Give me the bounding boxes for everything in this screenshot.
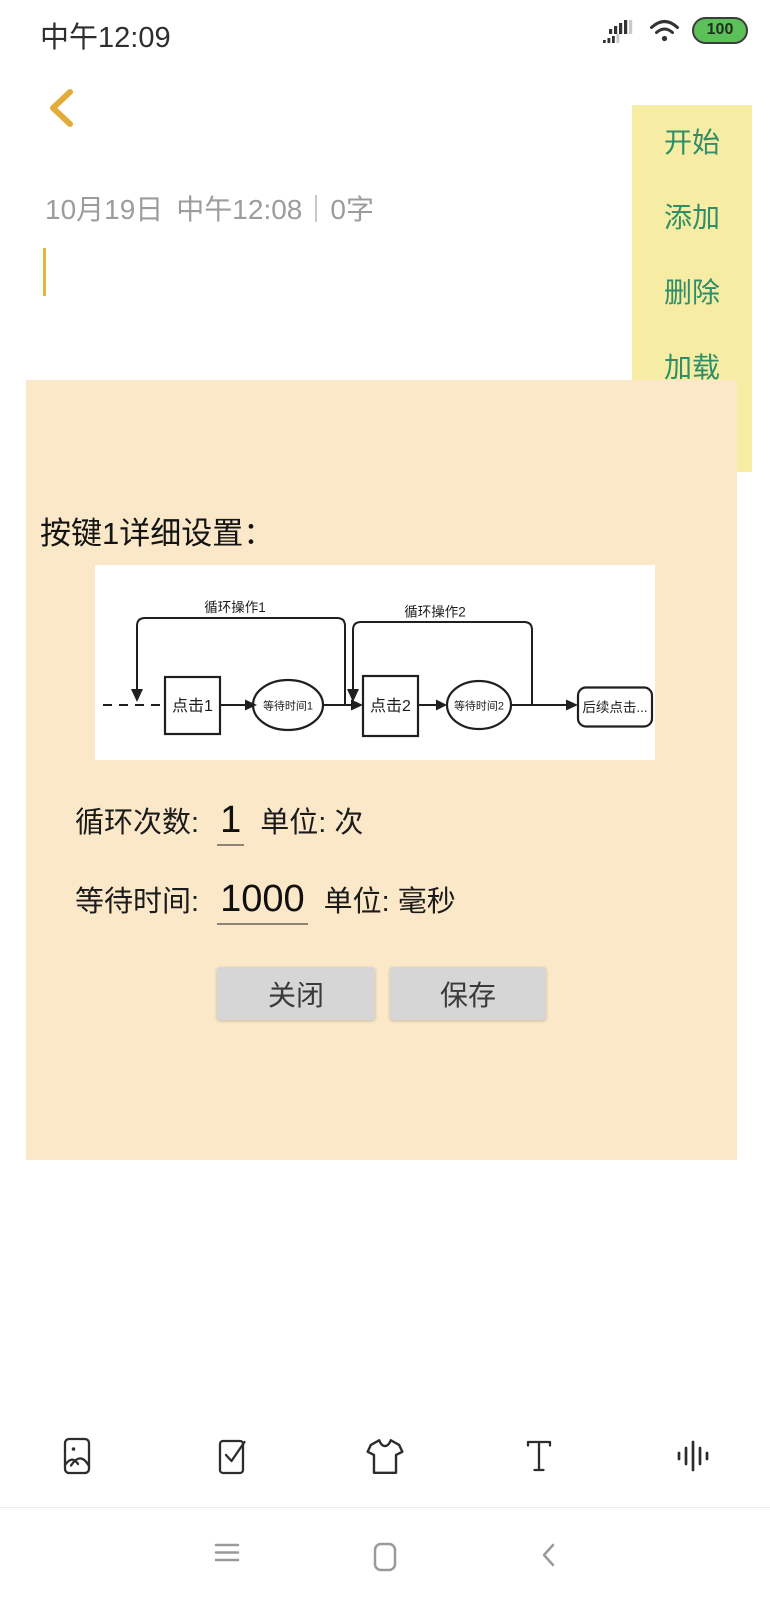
- insert-checklist-button[interactable]: [154, 1432, 308, 1480]
- loop1-down-arrowhead: [131, 689, 143, 702]
- tshirt-icon: [364, 1435, 406, 1477]
- status-bar: 中午12:09 100: [0, 0, 770, 62]
- text-format-icon: [519, 1435, 559, 1477]
- navbar-separator: [0, 1507, 770, 1508]
- wait-time-label: 等待时间:: [75, 878, 199, 920]
- checklist-icon: [211, 1435, 251, 1477]
- menu-icon: [212, 1541, 242, 1565]
- node-next-label: 后续点击...: [582, 700, 647, 715]
- home-icon: [372, 1541, 398, 1573]
- note-meta: 10月19日 中午12:08 0字: [45, 188, 374, 228]
- nav-back-button[interactable]: [539, 1541, 557, 1574]
- image-icon: [57, 1435, 97, 1477]
- wait-time-input[interactable]: 1000: [217, 880, 308, 925]
- loop-count-input[interactable]: 1: [217, 801, 244, 846]
- note-time: 中午12:08: [176, 188, 302, 228]
- note-char-count: 0字: [330, 188, 374, 228]
- save-button[interactable]: 保存: [390, 967, 546, 1020]
- battery-indicator: 100: [692, 17, 748, 44]
- screen: 中午12:09 100: [0, 0, 770, 1600]
- menu-item-delete[interactable]: 删除: [632, 273, 752, 313]
- text-format-button[interactable]: [462, 1432, 616, 1480]
- node-click1-label: 点击1: [172, 697, 213, 715]
- menu-item-start[interactable]: 开始: [632, 123, 752, 163]
- audio-record-button[interactable]: [616, 1432, 770, 1480]
- node-wait1-label: 等待时间1: [263, 699, 313, 713]
- loop1-label: 循环操作1: [204, 600, 266, 615]
- loop-count-unit: 单位: 次: [260, 799, 363, 841]
- key-settings-dialog: 按键1详细设置： 循环操作1 循环操作2 点击1: [26, 380, 737, 1160]
- back-chevron-icon: [44, 86, 78, 130]
- status-icons: 100: [601, 16, 748, 44]
- meta-divider: [315, 195, 317, 222]
- nav-home-button[interactable]: [372, 1541, 398, 1578]
- flowchart-diagram: 循环操作1 循环操作2 点击1 等待时间1 点击2: [95, 565, 655, 760]
- dialog-title: 按键1详细设置：: [40, 508, 274, 553]
- loop-count-label: 循环次数:: [75, 799, 199, 841]
- loop1-arc: [137, 618, 345, 705]
- back-button[interactable]: [44, 86, 84, 134]
- close-button[interactable]: 关闭: [217, 967, 375, 1020]
- note-toolbar: [0, 1432, 770, 1480]
- wifi-icon: [649, 18, 680, 43]
- nav-back-icon: [539, 1541, 557, 1569]
- wait-time-row: 等待时间: 1000 单位: 毫秒: [75, 878, 456, 925]
- battery-level: 100: [707, 21, 734, 39]
- note-date: 10月19日: [45, 188, 163, 228]
- note-editor[interactable]: [28, 238, 608, 368]
- status-time: 中午12:09: [40, 14, 171, 56]
- wait-time-unit: 单位: 毫秒: [324, 878, 456, 920]
- text-cursor: [43, 248, 46, 296]
- audio-waveform-icon: [673, 1435, 713, 1477]
- loop2-label: 循环操作2: [404, 605, 466, 620]
- insert-image-button[interactable]: [0, 1432, 154, 1480]
- node-wait2-label: 等待时间2: [454, 699, 504, 713]
- signal-strength-icon: [601, 16, 637, 44]
- node-click2-label: 点击2: [370, 697, 411, 715]
- template-button[interactable]: [308, 1432, 462, 1480]
- nav-menu-button[interactable]: [212, 1541, 242, 1570]
- loop2-down-arrowhead: [347, 689, 359, 702]
- loop-count-row: 循环次数: 1 单位: 次: [75, 799, 363, 846]
- menu-item-add[interactable]: 添加: [632, 198, 752, 238]
